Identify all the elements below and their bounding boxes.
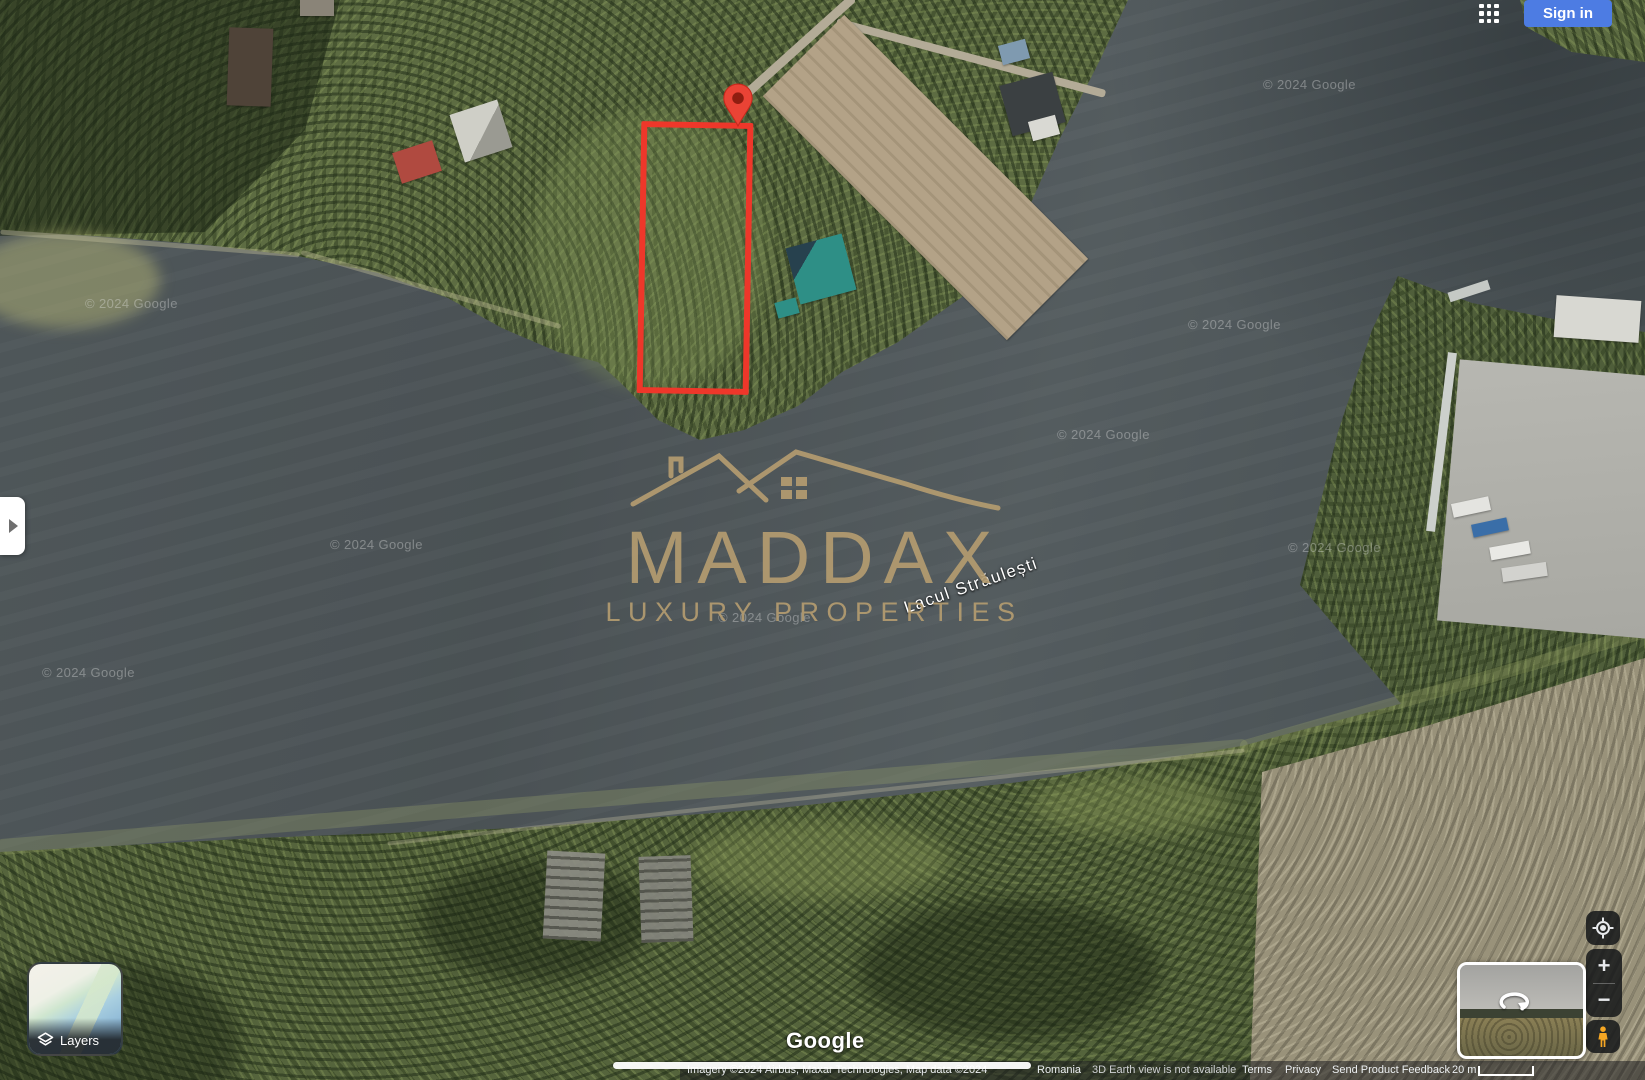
privacy-link[interactable]: Privacy [1285, 1064, 1321, 1076]
horizontal-scrollbar[interactable] [613, 1062, 1031, 1069]
map-pin[interactable] [722, 83, 754, 132]
apps-grid-icon [1479, 4, 1499, 24]
copyright-watermark: © 2024 Google [1288, 540, 1381, 555]
pegman-button[interactable] [1586, 1020, 1620, 1053]
copyright-watermark: © 2024 Google [1188, 317, 1281, 332]
layers-label: Layers [60, 1033, 99, 1048]
layers-icon [37, 1032, 54, 1048]
region-label: Romania [1037, 1064, 1081, 1076]
satellite-map[interactable]: © 2024 Google © 2024 Google © 2024 Googl… [0, 0, 1645, 1080]
tree-shadow [420, 860, 650, 980]
maddax-roof-logo [624, 438, 1004, 516]
copyright-watermark: © 2024 Google [330, 537, 423, 552]
sunlit-trees [1030, 775, 1230, 835]
google-wordmark[interactable]: Google [786, 1028, 865, 1054]
ruins [543, 851, 606, 942]
chevron-right-icon [9, 519, 18, 533]
copyright-watermark: © 2024 Google [85, 296, 178, 311]
house [227, 27, 274, 106]
scale-label: 20 m [1452, 1064, 1476, 1076]
copyright-watermark: © 2024 Google [42, 665, 135, 680]
zoom-out-button[interactable]: − [1586, 984, 1622, 1018]
sunlit-trees [690, 820, 950, 900]
warehouse-roof [1554, 295, 1642, 343]
my-location-button[interactable] [1586, 911, 1620, 945]
copyright-watermark: © 2024 Google [1057, 427, 1150, 442]
earth-view-notice: 3D Earth view is not available [1092, 1064, 1236, 1076]
zoom-in-button[interactable]: + [1586, 949, 1622, 983]
property-outline [637, 121, 754, 395]
terms-link[interactable]: Terms [1242, 1064, 1272, 1076]
concrete-lot [1437, 359, 1645, 638]
pegman-icon [1595, 1026, 1611, 1048]
tree-shadow [860, 900, 1160, 1040]
street-view-preview[interactable] [1457, 962, 1586, 1059]
brand-tagline: LUXURY PROPERTIES [598, 597, 1030, 628]
maddax-watermark: MADDAX LUXURY PROPERTIES [598, 438, 1030, 628]
preview-ground [1460, 1018, 1583, 1056]
pin-icon [722, 83, 754, 127]
ruins [639, 855, 694, 943]
rotate-view-icon [1494, 991, 1532, 1015]
shed [300, 0, 334, 16]
scale-bar [1478, 1066, 1534, 1076]
side-panel-toggle[interactable] [0, 497, 25, 555]
feedback-link[interactable]: Send Product Feedback [1332, 1064, 1450, 1076]
sign-in-button[interactable]: Sign in [1524, 0, 1612, 27]
brand-name: MADDAX [598, 523, 1030, 593]
my-location-icon [1592, 917, 1614, 939]
zoom-controls[interactable]: + − [1586, 949, 1622, 1017]
layers-button[interactable]: Layers [27, 962, 123, 1056]
copyright-watermark: © 2024 Google [1263, 77, 1356, 92]
google-apps-button[interactable] [1475, 0, 1503, 27]
